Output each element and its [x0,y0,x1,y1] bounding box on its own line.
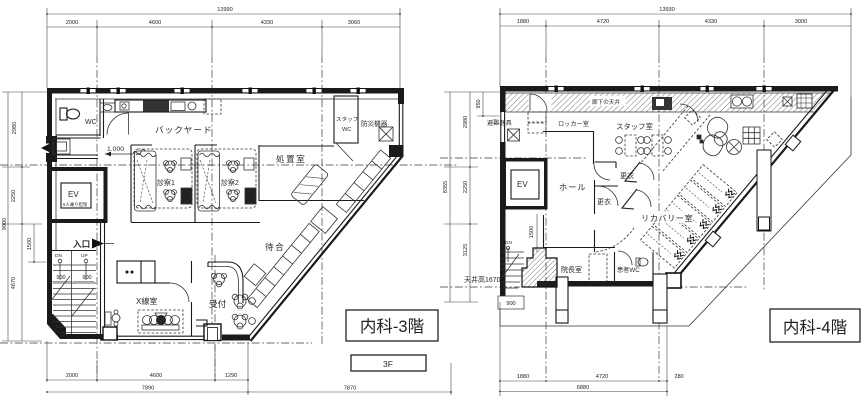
svg-text:2000: 2000 [66,20,78,26]
svg-text:6880: 6880 [577,385,589,391]
svg-text:ホール: ホール [559,183,587,192]
svg-text:900: 900 [82,275,91,281]
svg-text:2250: 2250 [11,190,17,202]
svg-text:1880: 1880 [517,374,529,380]
svg-text:4330: 4330 [705,19,717,25]
svg-text:4720: 4720 [596,374,608,380]
svg-text:13990: 13990 [217,7,233,13]
svg-text:1500: 1500 [529,226,535,238]
svg-text:3F: 3F [383,359,393,369]
svg-text:7870: 7870 [344,386,356,392]
svg-text:X線室: X線室 [136,296,157,306]
svg-text:6人乗り担架: 6人乗り担架 [63,201,88,208]
svg-text:4720: 4720 [597,19,609,25]
svg-text:診察1: 診察1 [157,178,175,187]
svg-text:4670: 4670 [11,277,17,289]
svg-text:内科-4階: 内科-4階 [783,318,847,337]
svg-text:WC: WC [342,127,351,133]
svg-text:スタッフ: スタッフ [336,115,358,123]
svg-text:バックヤード: バックヤード [155,125,213,135]
svg-text:リカバリー室: リカバリー室 [641,213,693,223]
svg-text:DN: DN [505,240,512,246]
svg-text:診察2: 診察2 [221,178,239,187]
svg-text:2980: 2980 [463,116,469,128]
svg-text:2000: 2000 [66,373,78,379]
svg-text:処置室: 処置室 [276,153,306,164]
svg-text:1290: 1290 [225,373,237,379]
svg-text:9900: 9900 [2,218,8,230]
svg-text:UP: UP [81,253,88,259]
svg-text:2980: 2980 [12,122,18,134]
svg-text:8355: 8355 [443,181,449,193]
svg-text:避難器具: 避難器具 [487,119,512,127]
svg-text:950: 950 [476,99,482,108]
svg-text:EV: EV [68,190,79,199]
svg-text:900: 900 [56,275,65,281]
svg-text:天井高1670: 天井高1670 [464,275,501,284]
svg-text:内科-3階: 内科-3階 [360,317,424,336]
svg-text:WC: WC [85,119,97,126]
svg-text:スタッフ室: スタッフ室 [616,122,653,131]
svg-text:7890: 7890 [142,386,154,392]
svg-text:更衣: 更衣 [597,197,611,206]
svg-text:1.000: 1.000 [107,146,124,153]
svg-text:2250: 2250 [463,181,469,193]
svg-text:3125: 3125 [463,244,469,256]
svg-text:ロッカー室: ロッカー室 [558,120,589,128]
svg-text:EV: EV [517,180,528,189]
svg-text:待合: 待合 [265,241,285,252]
svg-text:1880: 1880 [517,19,529,25]
svg-text:院長室: 院長室 [561,265,582,274]
svg-text:患者WC: 患者WC [617,266,640,274]
svg-text:4600: 4600 [149,20,161,26]
svg-text:DN: DN [55,253,62,259]
svg-text:900: 900 [506,301,515,307]
svg-text:13930: 13930 [659,7,675,13]
svg-text:4600: 4600 [150,373,162,379]
svg-text:3000: 3000 [795,19,807,25]
svg-text:3060: 3060 [348,20,360,26]
svg-text:受付: 受付 [209,298,227,309]
svg-text:1500: 1500 [27,238,33,250]
svg-text:4330: 4330 [261,20,273,26]
svg-text:廊下の天井: 廊下の天井 [592,98,620,106]
svg-text:280: 280 [674,374,683,380]
svg-text:入口: 入口 [73,239,90,249]
